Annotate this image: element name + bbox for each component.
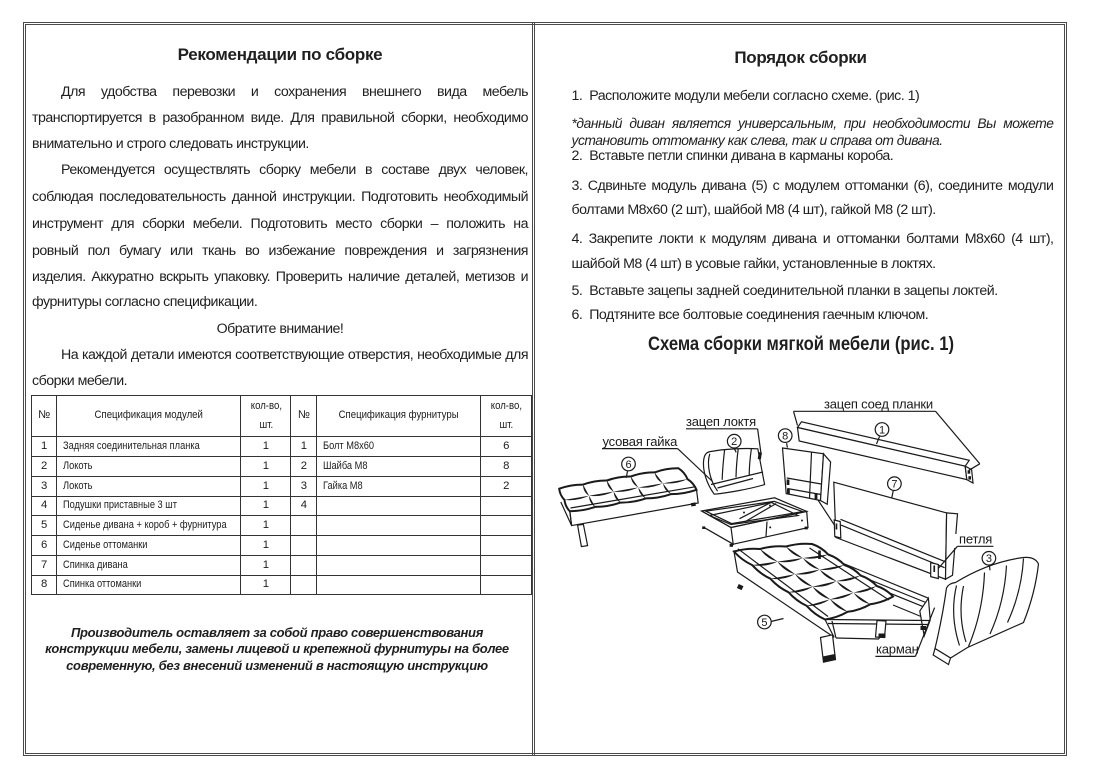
svg-text:зацеп локтя: зацеп локтя [686, 414, 756, 429]
svg-text:5: 5 [761, 617, 767, 629]
svg-text:2: 2 [731, 436, 737, 448]
svg-text:карман: карман [876, 642, 919, 657]
svg-text:7: 7 [891, 479, 897, 491]
svg-text:усовая гайка: усовая гайка [603, 434, 679, 449]
svg-text:1: 1 [879, 424, 885, 436]
svg-text:3: 3 [986, 553, 992, 565]
svg-text:зацеп соед планки: зацеп соед планки [824, 397, 933, 412]
svg-text:петля: петля [959, 532, 992, 547]
svg-text:8: 8 [782, 431, 788, 443]
svg-text:6: 6 [625, 459, 631, 471]
